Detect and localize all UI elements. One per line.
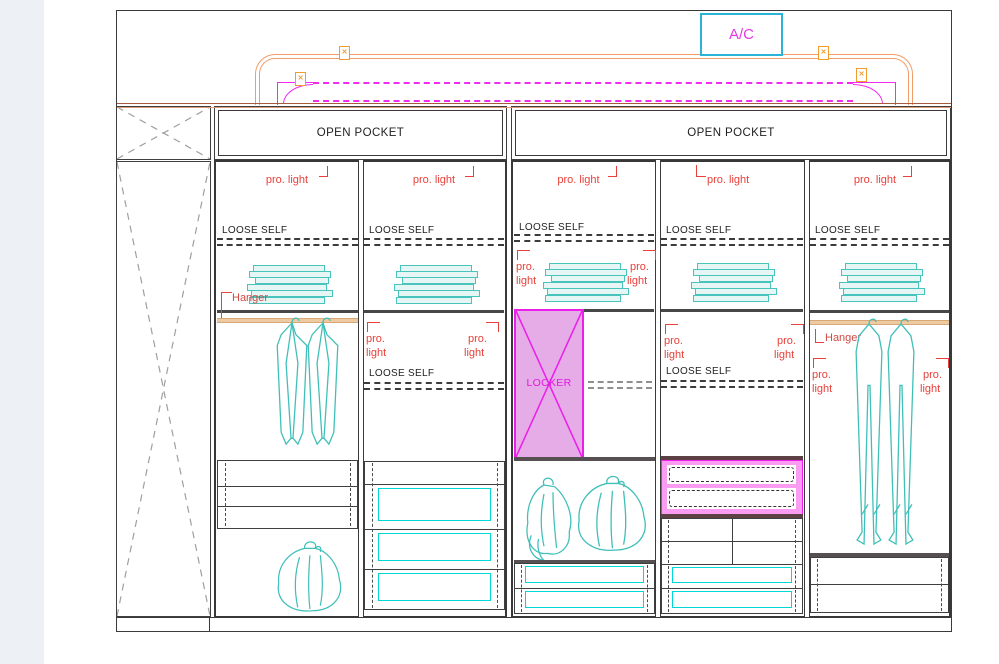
annotation-leader (936, 358, 949, 368)
annotation-leader (319, 166, 328, 177)
hanger-label: Hanger (232, 292, 268, 305)
drawer-row (217, 506, 358, 529)
folded-stack-icon (392, 265, 482, 310)
annotation-leader (696, 165, 706, 177)
annotation-leader (791, 324, 804, 334)
drawer-front-cyan (525, 566, 644, 583)
drawer-dashed-guide (521, 565, 522, 612)
pro-light-label: light (920, 383, 940, 396)
annotation-leader (486, 322, 499, 332)
drawer-dashed-guide (225, 463, 226, 526)
pro-light-label: pro. light (707, 174, 749, 187)
loose-shelf-label: LOOSE SELF (519, 222, 584, 233)
drawer-grid (661, 518, 803, 565)
route-connector-icon: ✕ (818, 46, 829, 60)
annotation-leader (608, 166, 617, 177)
drawer-dashed-guide (668, 566, 669, 612)
pro-light-label: pro. light (511, 174, 646, 187)
drawer-row (667, 488, 796, 509)
storage-bag-icon (262, 538, 357, 616)
drawer-row (364, 484, 505, 530)
drawer-front-cyan (378, 488, 491, 521)
hanging-suit-icon (303, 314, 343, 452)
drawer-dashed-guide (941, 559, 942, 611)
loose-shelf-dashes (514, 234, 654, 246)
drawer-front-cyan (525, 591, 644, 608)
hanger-leader (815, 329, 824, 343)
pro-light-label: light (516, 275, 536, 288)
pro-light-label: light (774, 349, 794, 362)
drawer-dashed-guide (372, 463, 373, 608)
pro-light-label: pro. light (217, 174, 357, 187)
loose-shelf-label: LOOSE SELF (369, 225, 434, 236)
drawer-row (661, 588, 803, 614)
folded-stack-icon (689, 263, 779, 308)
drawer-row (810, 584, 949, 613)
route-connector-icon: ✕ (295, 72, 306, 86)
loose-shelf-label: LOOSE SELF (666, 366, 731, 377)
shelf-line (364, 310, 504, 313)
drawer-row (514, 588, 655, 614)
drawer-dashed-front (669, 467, 794, 482)
pro-light-label: pro. (664, 335, 683, 348)
pro-light-label: light (464, 347, 484, 360)
loose-shelf-dashes (364, 238, 504, 250)
ac-label: A/C (702, 15, 781, 54)
loose-shelf-label: LOOSE SELF (369, 368, 434, 379)
drawer-dashed-guide (350, 463, 351, 526)
drawer-front-cyan (378, 533, 491, 561)
folded-stack-icon (837, 263, 927, 308)
drawer-row (217, 460, 358, 487)
side-cabinet-top-panel (116, 106, 211, 160)
drawer-front-cyan (672, 591, 792, 608)
hanging-coat-icon (852, 316, 886, 549)
pro-light-label: light (366, 347, 386, 360)
drawer-dashed-front (669, 490, 794, 507)
shelf-line (217, 310, 358, 313)
pro-light-label: pro. (630, 261, 649, 274)
shelf-dashes (588, 381, 652, 393)
pro-light-label: pro. (468, 333, 487, 346)
shelf-line (661, 309, 803, 312)
shelf-line (810, 310, 949, 313)
annotation-leader (367, 322, 380, 332)
annotation-leader (813, 358, 826, 368)
annotation-leader (517, 250, 530, 260)
pro-light-label: pro. (366, 333, 385, 346)
light-route-magenta-dash-top (313, 82, 853, 84)
open-pocket-right-label: OPEN POCKET (516, 127, 946, 139)
side-cabinet-door-panel (116, 161, 211, 617)
drawer-dashed-guide (817, 559, 818, 611)
pro-light-label: pro. (923, 369, 942, 382)
drawer-row (661, 564, 803, 589)
pro-light-label: pro. light (364, 174, 504, 187)
drawer-dashed-guide (497, 463, 498, 608)
loose-shelf-dashes (661, 380, 803, 392)
drawer-row (514, 563, 655, 589)
drawer-dashed-guide (647, 565, 648, 612)
annotation-leader (643, 250, 656, 260)
pro-light-label: pro. (812, 369, 831, 382)
crossed-door-icon (117, 162, 210, 616)
pink-drawer-unit (661, 460, 803, 515)
loose-shelf-label: LOOSE SELF (666, 225, 731, 236)
loose-shelf-dashes (217, 238, 358, 250)
open-pocket-left-box: OPEN POCKET (214, 106, 507, 160)
loose-shelf-dashes (661, 238, 803, 250)
plinth (116, 617, 952, 632)
folded-stack-icon (541, 263, 631, 308)
route-connector-icon: ✕ (856, 68, 867, 82)
loose-shelf-label: LOOSE SELF (222, 225, 287, 236)
pro-light-label: pro. (777, 335, 796, 348)
annotation-leader (665, 324, 678, 334)
drawer-row (364, 569, 505, 610)
route-connector-icon: ✕ (339, 46, 350, 60)
pro-light-label: pro. (516, 261, 535, 274)
loose-shelf-dashes (364, 382, 504, 394)
drawer-dashed-guide (795, 520, 796, 563)
drawer-row (810, 557, 949, 585)
drawer-dashed-guide (795, 566, 796, 612)
locker-label: LOCKER (516, 377, 582, 389)
drawer-dashed-guide (668, 520, 669, 563)
wardrobe-elevation-drawing: ✕ ✕ ✕ ✕ A/C OPEN POCKET OPEN POCKET pro.… (0, 0, 999, 664)
light-route-magenta-dash-bottom (313, 100, 853, 102)
plinth-divider (209, 617, 210, 632)
annotation-leader (465, 166, 474, 177)
drawer-row (364, 529, 505, 570)
open-pocket-left-label: OPEN POCKET (219, 127, 502, 139)
drawer-row (217, 486, 358, 507)
hanging-coat-icon (884, 316, 918, 549)
pro-light-label: light (812, 383, 832, 396)
viewer-sidebar-strip (0, 0, 44, 664)
pro-light-label: light (664, 349, 684, 362)
drawer-front-cyan (378, 573, 491, 601)
drawer-row (667, 465, 796, 484)
drawer-front-cyan (672, 567, 792, 583)
column-divider (804, 160, 810, 618)
locker-box: LOCKER (514, 309, 584, 459)
drawer-row (364, 461, 505, 485)
wardrobe-top-line (117, 103, 951, 108)
loose-shelf-label: LOOSE SELF (815, 225, 880, 236)
crossed-panel-icon (117, 107, 210, 159)
storage-bag-icon (568, 465, 656, 563)
bench-top-line (514, 457, 655, 461)
loose-shelf-dashes (810, 238, 949, 250)
open-pocket-right-box: OPEN POCKET (511, 106, 951, 160)
ac-box: A/C (700, 13, 783, 56)
annotation-leader (903, 166, 912, 177)
pro-light-label: pro. light (810, 174, 940, 187)
